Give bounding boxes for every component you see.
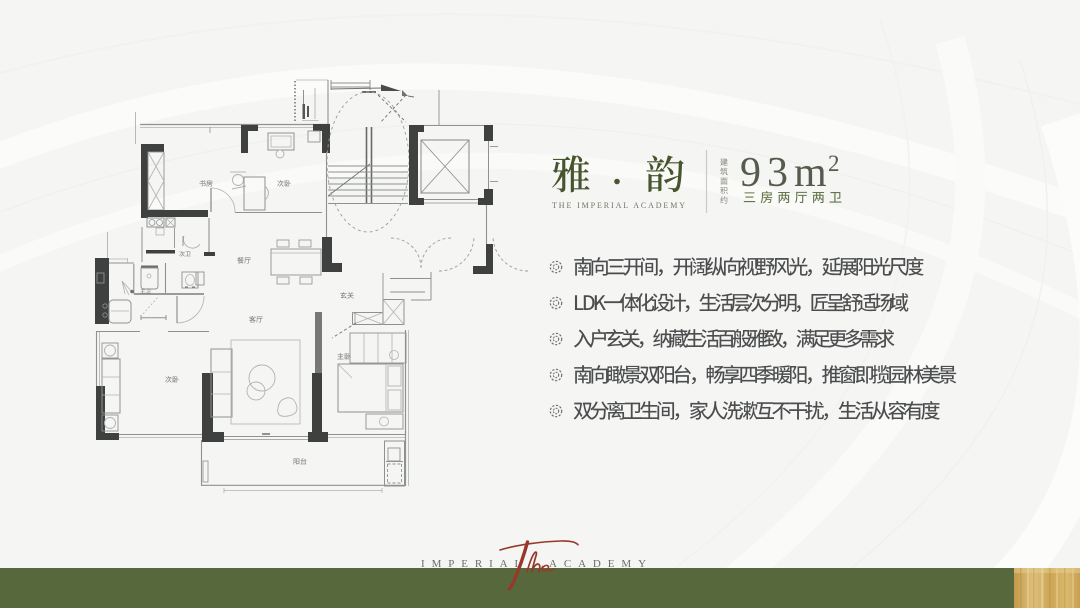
svg-text:ACADEMY: ACADEMY bbox=[549, 558, 653, 570]
svg-text:IMPERIAL: IMPERIAL bbox=[421, 558, 528, 570]
svg-text:93m: 93m bbox=[740, 150, 833, 196]
svg-text:2: 2 bbox=[828, 151, 840, 176]
